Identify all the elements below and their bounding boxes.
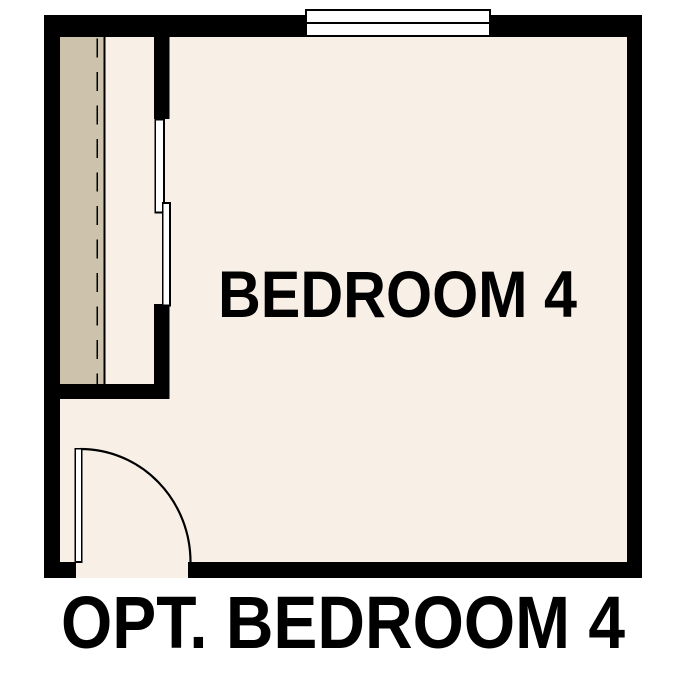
svg-text:BEDROOM 4: BEDROOM 4 (218, 258, 578, 331)
svg-text:OPT. BEDROOM 4: OPT. BEDROOM 4 (61, 581, 625, 664)
